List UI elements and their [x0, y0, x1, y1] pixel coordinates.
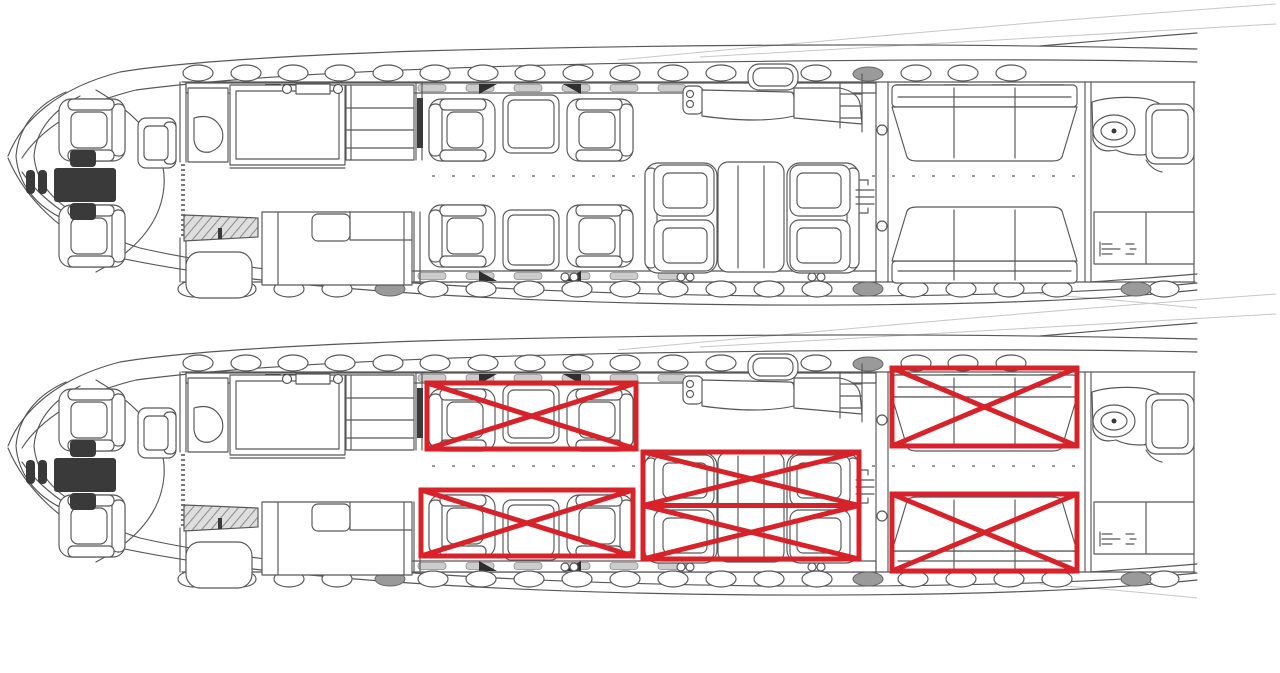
diagram-stage [0, 0, 1280, 673]
aircraft-floorplans-svg [0, 0, 1280, 673]
floorplan-original [8, 4, 1276, 308]
